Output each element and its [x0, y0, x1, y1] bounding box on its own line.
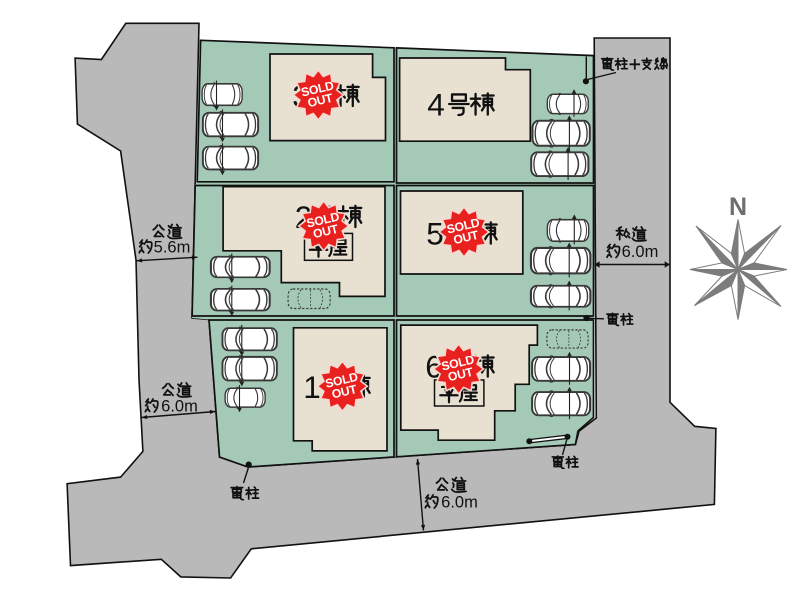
svg-text:5.6m: 5.6m — [154, 238, 191, 256]
svg-text:N: N — [729, 193, 747, 221]
svg-text:6.0m: 6.0m — [441, 493, 478, 511]
svg-text:4: 4 — [427, 87, 445, 123]
svg-text:6.0m: 6.0m — [622, 243, 659, 261]
svg-text:6.0m: 6.0m — [161, 397, 198, 415]
